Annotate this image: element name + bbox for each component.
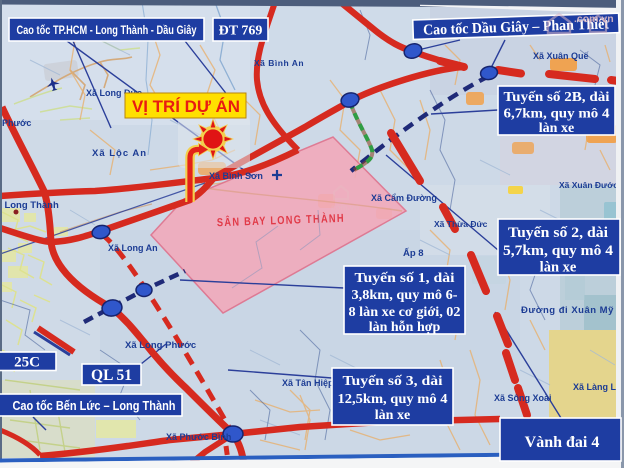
svg-text:làn xe: làn xe — [539, 121, 574, 136]
svg-text:25C: 25C — [14, 355, 40, 371]
svg-text:làn hỗn hợp: làn hỗn hợp — [369, 319, 441, 335]
svg-text:Vành đai 4: Vành đai 4 — [525, 434, 600, 451]
svg-text:Xã Xuân Quế: Xã Xuân Quế — [533, 51, 590, 61]
svg-text:Xã Bình Sơn: Xã Bình Sơn — [209, 171, 263, 181]
svg-text:Xã Phước Bình: Xã Phước Bình — [166, 432, 231, 442]
svg-text:Xã Xuân Đước: Xã Xuân Đước — [559, 180, 618, 190]
svg-text:12,5km, quy mô 4: 12,5km, quy mô 4 — [338, 392, 448, 407]
svg-text:Ấp 8: Ấp 8 — [403, 248, 424, 259]
svg-text:ĐT 769: ĐT 769 — [219, 24, 263, 39]
svg-text:Xã Lộc An: Xã Lộc An — [92, 148, 147, 159]
svg-text:.com.vn: .com.vn — [574, 13, 614, 25]
svg-text:làn xe: làn xe — [540, 260, 577, 276]
svg-text:com.vn: com.vn — [331, 203, 359, 212]
svg-text:6,7km, quy mô 4: 6,7km, quy mô 4 — [504, 107, 610, 122]
svg-text:Xã Bình An: Xã Bình An — [254, 58, 304, 68]
svg-text:Tuyến số 1, dài: Tuyến số 1, dài — [355, 271, 455, 286]
svg-text:QL 51: QL 51 — [91, 367, 132, 384]
svg-text:Xã Sông Xoài: Xã Sông Xoài — [494, 393, 552, 403]
svg-text:Cao tốc TP.HCM - Long Thành -: Cao tốc TP.HCM - Long Thành - Dầu Giây — [17, 25, 197, 37]
svg-text:Cao tốc Bến Lức – Long Thành: Cao tốc Bến Lức – Long Thành — [13, 398, 176, 413]
svg-text:n Long Thành: n Long Thành — [0, 200, 59, 211]
svg-text:Xã Tân Hiệp: Xã Tân Hiệp — [282, 378, 334, 388]
svg-text:Xã Thừa Đức: Xã Thừa Đức — [434, 219, 488, 229]
svg-text:Tuyến số 2, dài: Tuyến số 2, dài — [508, 225, 608, 241]
svg-text:5,7km, quy mô 4: 5,7km, quy mô 4 — [503, 243, 613, 259]
svg-text:Xã Long Phước: Xã Long Phước — [125, 340, 196, 351]
svg-text:Xã Cẩm Đường: Xã Cẩm Đường — [371, 193, 437, 203]
svg-text:Tuyến số 3, dài: Tuyến số 3, dài — [343, 374, 443, 389]
svg-text:làn xe: làn xe — [375, 408, 410, 423]
svg-text:VỊ TRÍ DỰ ÁN: VỊ TRÍ DỰ ÁN — [132, 97, 240, 116]
svg-text:3,8km, quy mô 6-: 3,8km, quy mô 6- — [352, 288, 458, 303]
svg-text:8 làn xe cơ giới, 02: 8 làn xe cơ giới, 02 — [349, 305, 461, 320]
svg-text:Phước: Phước — [2, 118, 31, 128]
svg-text:Xã Làng L: Xã Làng L — [573, 382, 617, 392]
svg-text:Xã Long An: Xã Long An — [108, 243, 158, 253]
svg-text:Đường đi Xuân Mỹ: Đường đi Xuân Mỹ — [521, 305, 614, 316]
svg-text:Tuyến số 2B, dài: Tuyến số 2B, dài — [504, 90, 610, 105]
